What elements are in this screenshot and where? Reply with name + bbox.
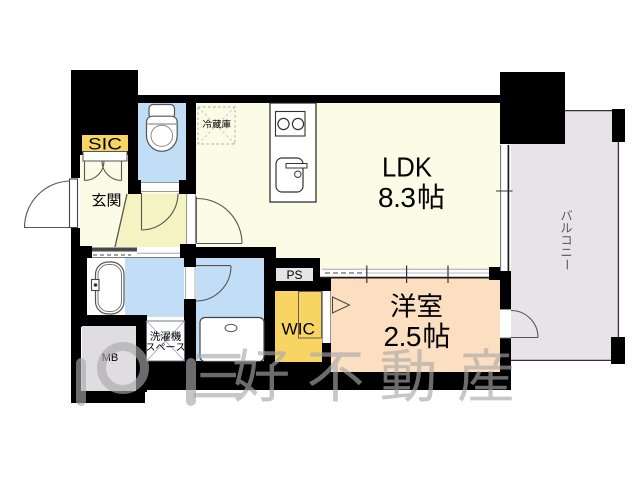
svg-text:LDK: LDK <box>382 152 432 183</box>
svg-text:PS: PS <box>286 268 302 282</box>
svg-text:2.5: 2.5 <box>384 321 422 352</box>
svg-text:8.3: 8.3 <box>378 182 416 213</box>
svg-text:SIC: SIC <box>88 136 122 154</box>
